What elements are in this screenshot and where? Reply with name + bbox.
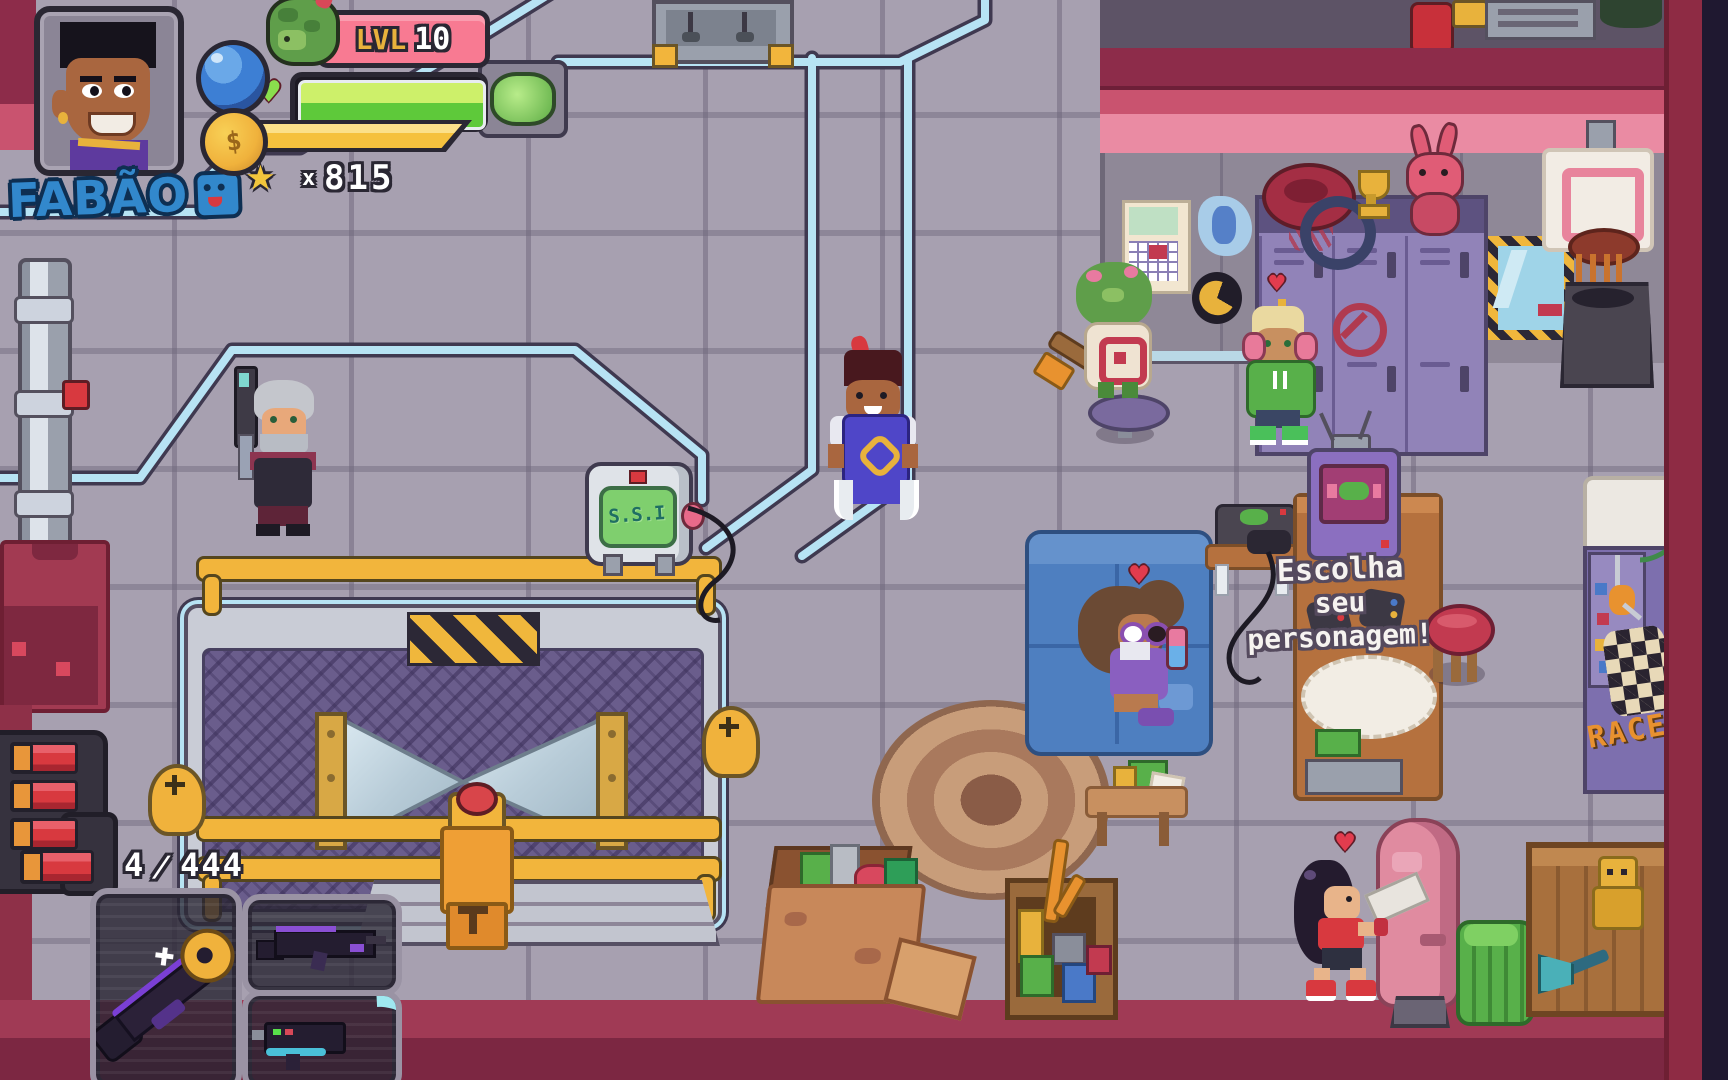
gold-earring-icon xyxy=(58,112,68,124)
retro-tv[interactable] xyxy=(1307,418,1393,552)
eye xyxy=(1284,340,1291,347)
toy-red xyxy=(1086,945,1112,975)
lever-handle[interactable] xyxy=(682,32,700,42)
coin-symbol: $ xyxy=(224,126,244,158)
t-handle-stem xyxy=(469,912,477,934)
chair-leg xyxy=(900,480,919,520)
face-tongue xyxy=(208,196,222,206)
orb-icon xyxy=(196,40,270,116)
wall-machine-icon xyxy=(1485,0,1596,40)
wall-pink-mid xyxy=(1100,90,1664,114)
ssi-red-light xyxy=(629,470,647,484)
claw-machine-top xyxy=(1583,476,1676,554)
sparkle xyxy=(161,947,168,965)
eye xyxy=(856,392,863,399)
locker-vent xyxy=(1274,260,1304,265)
shell-cap xyxy=(21,851,43,883)
button-pedestal[interactable] xyxy=(436,784,510,944)
punching-bag[interactable] xyxy=(1376,818,1456,1024)
table-leg xyxy=(1215,564,1229,596)
tongue-face-icon xyxy=(193,169,243,219)
cash-table xyxy=(1085,758,1182,848)
stool-leg xyxy=(1451,652,1461,682)
weapon-slot-primary[interactable] xyxy=(90,888,242,1080)
eye xyxy=(1346,896,1352,902)
jersey-badge xyxy=(856,432,904,480)
jersey-kid-character[interactable] xyxy=(828,336,918,526)
tv-light xyxy=(1381,540,1389,548)
shotgun-shell-icon xyxy=(10,818,78,850)
yellow-pipe-icon xyxy=(1452,0,1488,28)
game-viewport: S.S.I xyxy=(0,0,1728,1080)
locker[interactable] xyxy=(1405,236,1481,452)
rifle-magazine xyxy=(310,951,327,972)
headphone-cup-icon xyxy=(1294,332,1318,362)
boxer-girl-character[interactable]: ♥ xyxy=(1294,826,1386,996)
turtle-avatar-icon xyxy=(266,0,340,66)
coin-bar xyxy=(254,120,472,152)
wall-maroon-band xyxy=(1100,48,1664,90)
pipe-red-button[interactable] xyxy=(62,380,90,410)
toy-green xyxy=(1020,955,1054,997)
claw-arm xyxy=(1615,555,1620,589)
locker-handle[interactable] xyxy=(1460,366,1469,392)
locker-vent xyxy=(1347,362,1377,367)
ammo-counter: 4 / 444 xyxy=(124,846,244,884)
gun-light xyxy=(273,1029,281,1035)
gun-light xyxy=(285,1029,293,1035)
pipe-ring xyxy=(14,490,74,518)
ssi-leg xyxy=(603,554,623,576)
vest xyxy=(254,458,312,508)
poster-art xyxy=(1212,206,1236,244)
box-blotch xyxy=(784,912,807,926)
avatar-eye xyxy=(114,84,134,98)
cardboard-toy-box xyxy=(762,836,962,1016)
left-wall-corner xyxy=(0,0,36,150)
turtle-face xyxy=(278,30,306,50)
axe-head xyxy=(1538,954,1574,994)
headphone-cup-icon xyxy=(1242,332,1266,362)
red-tuft xyxy=(314,0,335,10)
heart-graffiti-icon: ♥ xyxy=(1269,269,1285,299)
screen-edge-void xyxy=(1702,0,1728,1080)
table-leg xyxy=(1159,812,1169,846)
green-duffel-bag xyxy=(1456,920,1534,1026)
drawstring xyxy=(1273,371,1277,389)
ssi-screen: S.S.I xyxy=(599,486,677,548)
calendar-art xyxy=(1129,207,1178,235)
gun-sight xyxy=(239,373,249,387)
red-button[interactable] xyxy=(456,782,498,816)
left-wall-pink xyxy=(0,104,36,150)
face-patch xyxy=(1102,288,1124,302)
eye xyxy=(880,392,887,399)
table-leg xyxy=(1097,812,1107,846)
machine-dot xyxy=(56,662,70,676)
leg xyxy=(1122,382,1138,398)
pink-spot xyxy=(1124,266,1138,278)
cash-stack-icon xyxy=(1315,729,1361,757)
level-value: 10 xyxy=(414,22,450,57)
locker-handle[interactable] xyxy=(1387,252,1396,278)
shell-patch xyxy=(304,20,320,32)
chair-leg xyxy=(834,480,853,520)
no-sign-graffiti xyxy=(1333,303,1387,357)
heart-indicator-icon: ♥ xyxy=(1336,826,1354,861)
eye xyxy=(270,416,277,423)
target-ring xyxy=(1099,337,1147,385)
shotgun-shell-icon xyxy=(10,742,78,774)
mirror-shine xyxy=(1493,250,1528,308)
machine-handle xyxy=(32,544,78,560)
screen-mark xyxy=(1373,484,1381,498)
trophy-stem xyxy=(1366,194,1376,204)
ammo-current: 4 xyxy=(124,846,143,884)
locker-vent xyxy=(1420,260,1450,265)
target-shirt-npc[interactable] xyxy=(1040,262,1160,402)
sneaker xyxy=(1282,426,1308,445)
orb-shine xyxy=(211,53,223,63)
popsicle-icon xyxy=(1166,626,1188,670)
screen-mark xyxy=(1327,484,1337,498)
locker-handle[interactable] xyxy=(1387,366,1396,392)
pupil xyxy=(90,86,99,96)
bag-base xyxy=(1390,996,1450,1028)
machine-slot xyxy=(1498,9,1578,15)
muzzle-hole xyxy=(193,944,215,966)
robot-toy-icon xyxy=(1588,856,1644,930)
headphones-kid-npc[interactable] xyxy=(1240,306,1316,444)
duffel-flap xyxy=(1464,924,1518,946)
level-label: LVL xyxy=(356,23,407,56)
coin-bar-shine xyxy=(258,124,462,133)
green-hair xyxy=(1076,262,1152,328)
machine-slot xyxy=(1498,21,1578,27)
wooden-crate xyxy=(1526,842,1684,1017)
couch-back xyxy=(1029,534,1209,564)
boot xyxy=(256,524,280,536)
calendar-mark xyxy=(1149,245,1167,259)
red-sneaker xyxy=(1306,980,1336,1001)
coin-icon: $ xyxy=(200,108,268,176)
old-man-character[interactable] xyxy=(226,366,316,536)
gun-grip xyxy=(286,1054,300,1070)
player-name-text: FABÃO xyxy=(7,168,189,229)
pupil xyxy=(122,86,131,96)
dark-plant-icon xyxy=(1600,0,1662,28)
console-light xyxy=(1280,509,1286,515)
stool-leg xyxy=(1433,648,1443,682)
bunny-eye xyxy=(1441,169,1448,176)
machine-dot xyxy=(12,642,26,656)
rifle-weapon-icon xyxy=(254,910,384,974)
ammo-reserve: 444 xyxy=(180,846,244,884)
right-pillar xyxy=(1664,0,1707,1080)
bunny-plush-icon xyxy=(1398,130,1470,232)
locker-vent xyxy=(1420,362,1450,367)
ssi-leg xyxy=(655,554,675,576)
turtle-eye xyxy=(284,36,290,42)
shell-cap xyxy=(11,819,33,849)
robot-eye xyxy=(1621,869,1627,875)
controller-glyph xyxy=(1339,482,1369,500)
avatar-face xyxy=(66,58,150,144)
gold-bracket xyxy=(768,44,794,68)
dialogue-line-2: seu xyxy=(1239,583,1440,623)
avatar-eye xyxy=(82,84,102,98)
pants xyxy=(258,506,308,526)
leg xyxy=(1098,382,1114,398)
pedestal-body xyxy=(440,826,514,914)
ssi-screen-label: S.S.I xyxy=(606,502,667,528)
shotgun-shell-icon xyxy=(20,850,94,884)
weapon-slot-tertiary[interactable] xyxy=(242,990,402,1080)
trophy-icon xyxy=(1352,170,1390,216)
bunny-eye xyxy=(1419,169,1426,176)
girl-overalls xyxy=(1110,648,1168,700)
brow xyxy=(80,76,102,82)
star-count-value: 815 xyxy=(324,158,394,198)
bag-stitch xyxy=(1420,934,1446,946)
shorts xyxy=(1322,948,1362,970)
shorts xyxy=(848,478,900,504)
sneaker xyxy=(1250,426,1276,445)
shell-cap xyxy=(11,781,33,811)
bunny-body xyxy=(1410,192,1460,236)
box-blotch xyxy=(854,948,882,964)
red-sneaker xyxy=(1346,980,1376,1001)
robot-body xyxy=(1592,886,1644,930)
trash-opening xyxy=(1572,288,1634,308)
robot-eye xyxy=(1607,869,1613,875)
boxing-wrap xyxy=(1374,918,1388,936)
monitor-screen xyxy=(490,72,556,126)
locker-vent xyxy=(1420,248,1450,253)
shell-patch xyxy=(278,8,298,22)
face-eye xyxy=(218,183,225,190)
gamepad-icon[interactable] xyxy=(1247,530,1291,554)
trophy-base xyxy=(1358,204,1390,219)
rifle-glow xyxy=(276,926,336,932)
boot xyxy=(286,524,310,536)
shell-cap xyxy=(11,743,33,773)
player-name: FABÃO xyxy=(7,166,243,229)
table-slot xyxy=(1305,759,1403,795)
level-badge: LVL 10 xyxy=(316,10,490,68)
jersey xyxy=(842,414,910,486)
arm xyxy=(902,444,918,468)
shotgun-weapon-icon xyxy=(90,913,242,1072)
brow xyxy=(114,76,136,82)
toy-tray xyxy=(1005,878,1118,1020)
shotgun-shell-icon xyxy=(10,780,78,812)
gold-bracket xyxy=(652,44,678,68)
face xyxy=(1324,886,1360,920)
console-logo xyxy=(1240,509,1268,525)
prize xyxy=(1595,583,1607,595)
couch-girl-npc[interactable]: ♥ xyxy=(1078,572,1198,730)
lever-machine[interactable] xyxy=(652,0,794,64)
face-eye xyxy=(204,184,211,191)
wall-pipe-column xyxy=(18,258,72,574)
toy-hammer xyxy=(1052,933,1086,965)
coin-bar-fill xyxy=(258,124,462,148)
pipe-ring xyxy=(14,296,74,324)
ssi-knob[interactable] xyxy=(681,502,705,530)
pink-spot xyxy=(1086,270,1102,282)
girl-shoe xyxy=(1138,708,1174,726)
prize xyxy=(1597,613,1609,625)
avatar-smile xyxy=(88,112,136,136)
wall-clock xyxy=(1192,272,1242,324)
fire-extinguisher-icon xyxy=(1410,2,1454,54)
ssi-machine[interactable]: S.S.I xyxy=(585,462,693,566)
target-center xyxy=(1114,352,1126,364)
lever-handle[interactable] xyxy=(736,32,754,42)
rifle-accent xyxy=(350,944,364,952)
no-sign-bar xyxy=(1340,312,1368,340)
player-avatar xyxy=(34,6,184,176)
rifle-barrel xyxy=(366,936,386,944)
star-count-prefix: x xyxy=(302,166,315,191)
green-monitor xyxy=(478,60,568,138)
drawstring xyxy=(1283,371,1287,389)
arm xyxy=(828,444,844,468)
ammo-separator: / xyxy=(150,850,174,883)
lace-doily xyxy=(1301,655,1437,739)
red-machine xyxy=(0,540,110,713)
weapon-slot-secondary[interactable] xyxy=(242,894,402,996)
bag-patch xyxy=(1392,852,1422,872)
toy-axe-icon xyxy=(1536,932,1616,1002)
clock-face xyxy=(1193,274,1241,321)
eye xyxy=(290,416,297,423)
tv-screen xyxy=(1319,464,1389,524)
trash-bin xyxy=(1560,282,1654,388)
girl-shirt xyxy=(1120,642,1150,660)
locker-handle[interactable] xyxy=(1460,252,1469,278)
avatar-shirt xyxy=(70,140,148,170)
hair-shine xyxy=(1304,870,1316,880)
gold-chain-icon xyxy=(78,138,140,150)
target-shirt xyxy=(1084,322,1152,390)
wall-seam xyxy=(1220,153,1223,363)
tv-body xyxy=(1307,448,1401,560)
claw-machine[interactable]: RACE xyxy=(1583,476,1672,786)
